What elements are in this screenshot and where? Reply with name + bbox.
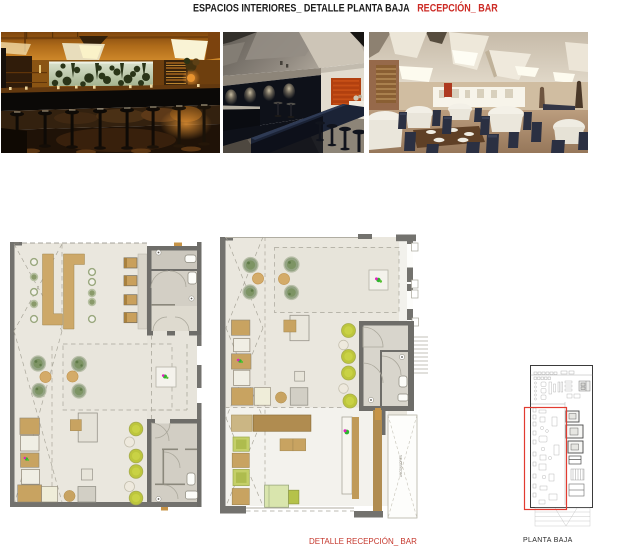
svg-text:ASCENSORES: ASCENSORES	[399, 455, 403, 477]
